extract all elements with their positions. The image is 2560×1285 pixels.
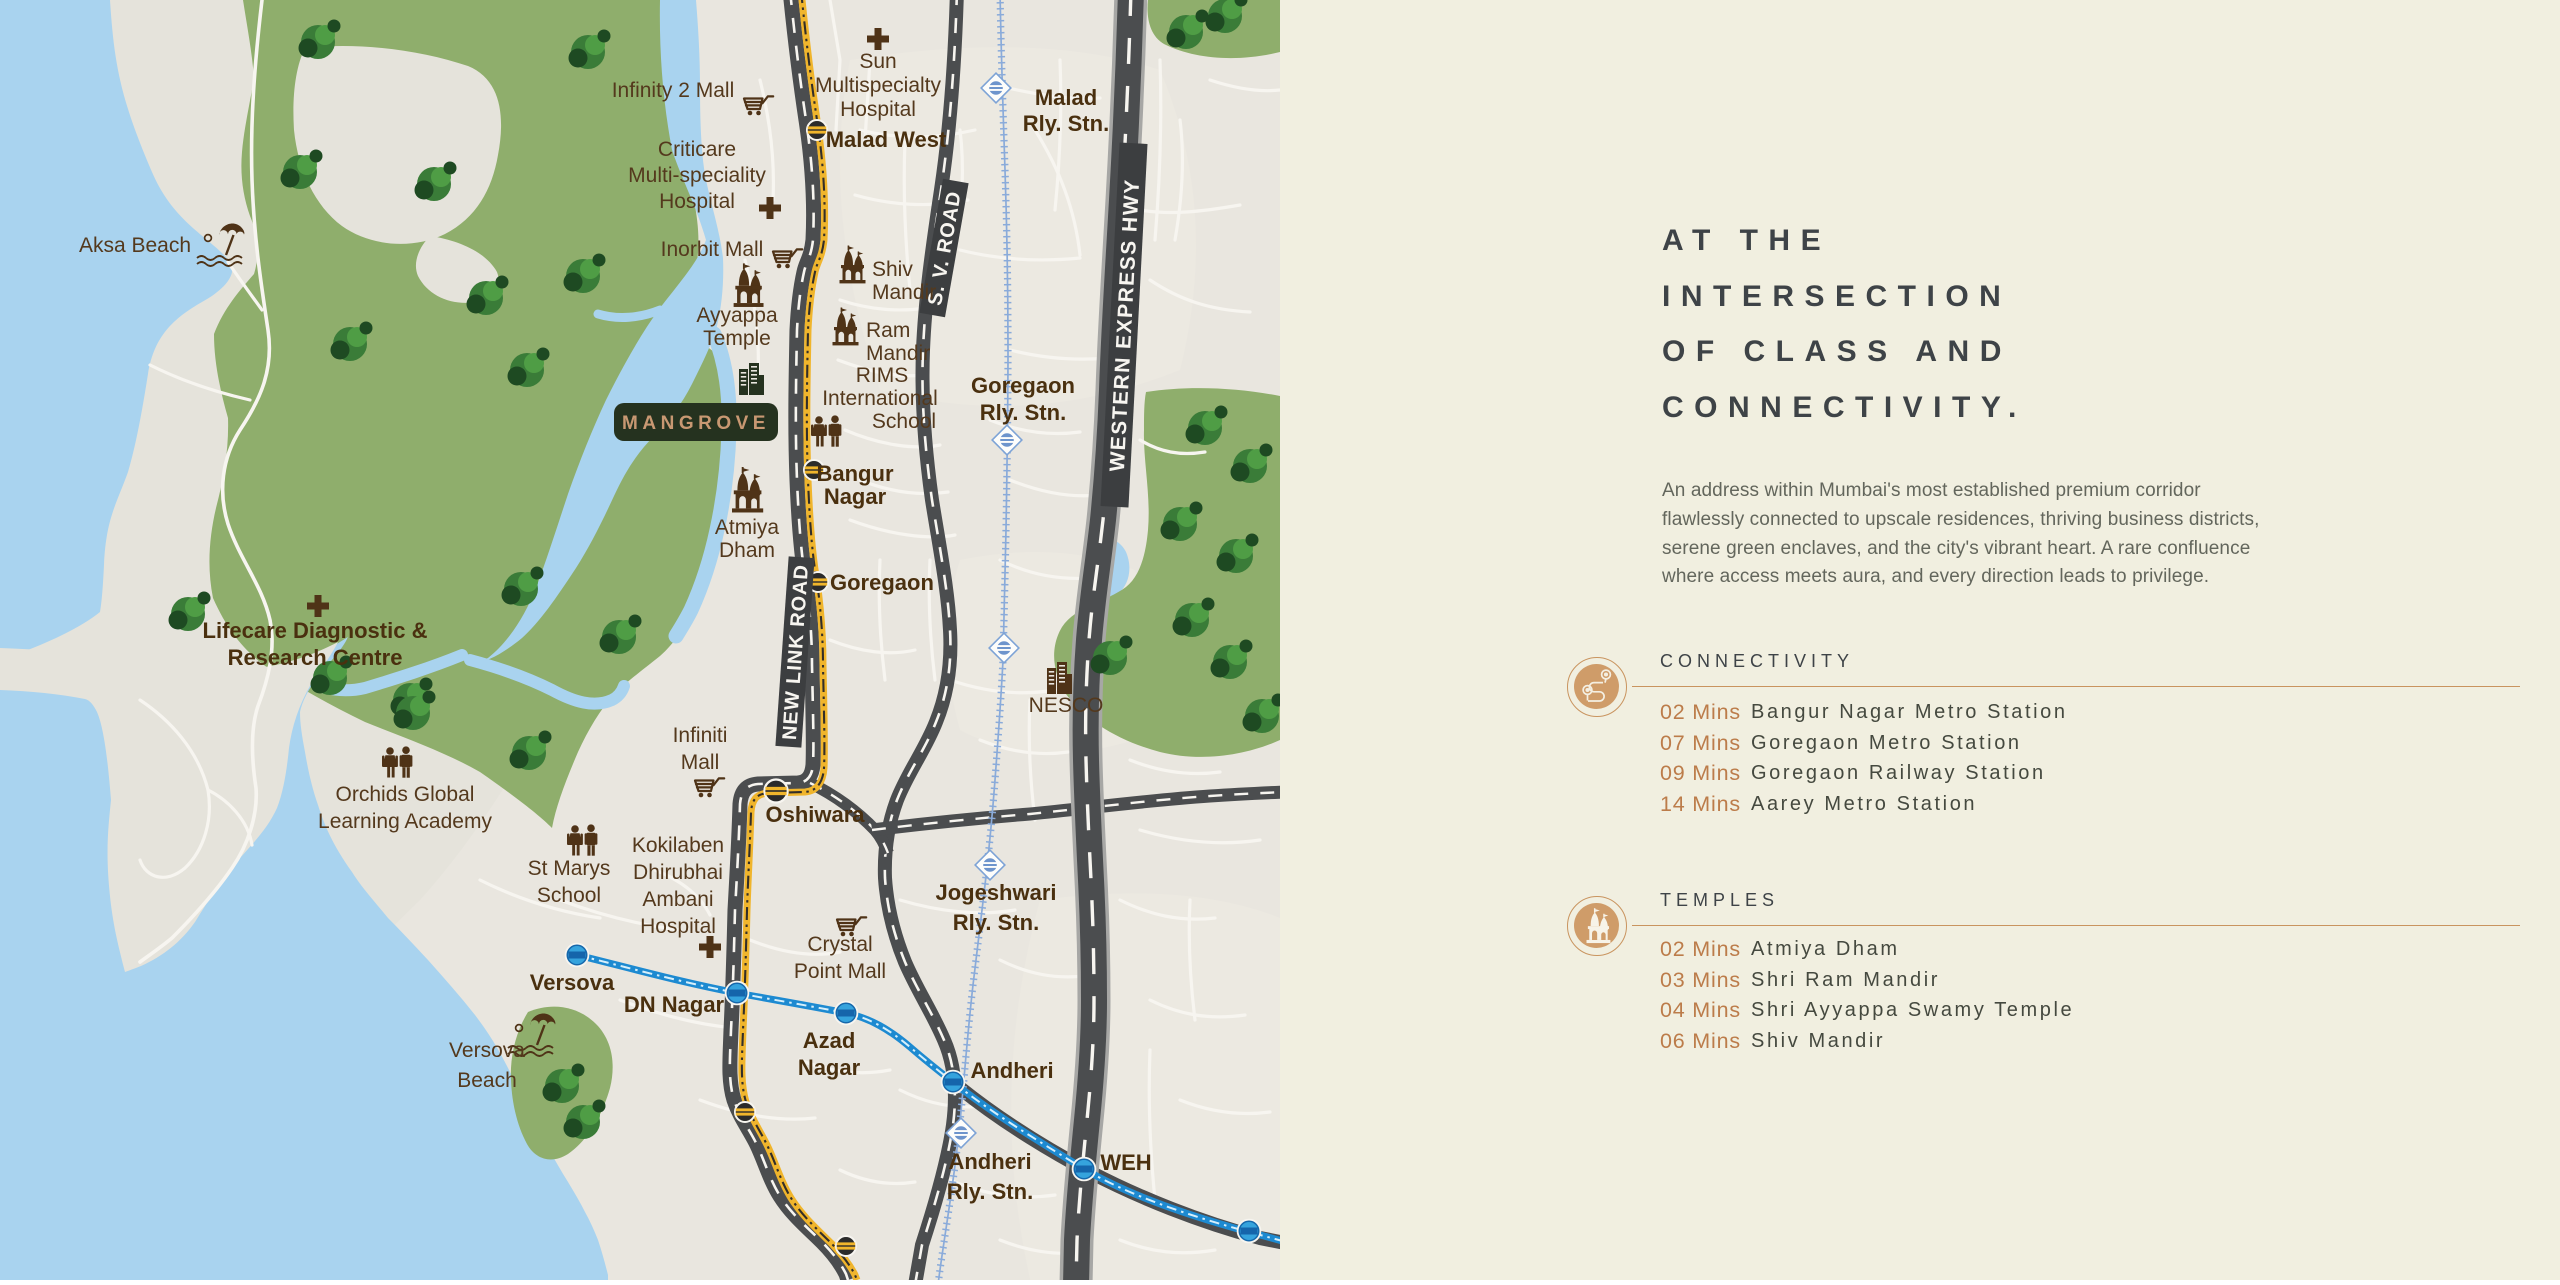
svg-text:Atmiya: Atmiya [715, 516, 780, 539]
svg-text:Learning Academy: Learning Academy [318, 810, 492, 833]
svg-text:Versova: Versova [530, 970, 615, 995]
svg-text:Infinity 2 Mall: Infinity 2 Mall [612, 79, 735, 102]
svg-text:Goregaon: Goregaon [830, 570, 934, 595]
svg-text:Hospital: Hospital [640, 915, 716, 938]
svg-text:Mall: Mall [681, 751, 720, 774]
svg-text:Dhirubhai: Dhirubhai [633, 861, 723, 884]
svg-text:St Marys: St Marys [528, 857, 611, 880]
svg-text:Rly. Stn.: Rly. Stn. [947, 1179, 1033, 1204]
svg-text:Hospital: Hospital [659, 190, 735, 213]
svg-text:Goregaon: Goregaon [971, 373, 1075, 398]
svg-text:International: International [822, 387, 938, 410]
svg-text:Dham: Dham [719, 539, 775, 562]
svg-text:Research Centre: Research Centre [228, 645, 403, 670]
svg-text:Oshiwara: Oshiwara [765, 802, 865, 827]
svg-text:Aksa Beach: Aksa Beach [79, 234, 191, 257]
svg-text:Crystal: Crystal [807, 933, 872, 956]
svg-text:Versova: Versova [449, 1039, 525, 1062]
svg-text:Rly. Stn.: Rly. Stn. [980, 400, 1066, 425]
svg-text:Jogeshwari: Jogeshwari [935, 880, 1056, 905]
svg-text:WEH: WEH [1100, 1150, 1151, 1175]
svg-text:Temple: Temple [703, 327, 771, 350]
svg-text:NESCO: NESCO [1029, 694, 1104, 717]
svg-text:Rly. Stn.: Rly. Stn. [1023, 111, 1109, 136]
svg-text:Beach: Beach [457, 1069, 517, 1092]
svg-text:Hospital: Hospital [840, 98, 916, 121]
svg-text:Point Mall: Point Mall [794, 960, 886, 983]
svg-text:Bangur: Bangur [817, 461, 894, 486]
svg-text:Inorbit Mall: Inorbit Mall [661, 238, 764, 261]
svg-text:Ayyappa: Ayyappa [696, 304, 778, 327]
svg-text:Shiv: Shiv [872, 258, 913, 281]
svg-text:Malad West: Malad West [826, 127, 947, 152]
svg-text:Ram: Ram [866, 319, 910, 342]
svg-text:MANGROVE: MANGROVE [622, 413, 770, 434]
svg-text:Kokilaben: Kokilaben [632, 834, 724, 857]
svg-text:School: School [872, 410, 936, 433]
svg-text:School: School [537, 884, 601, 907]
svg-text:Orchids Global: Orchids Global [336, 783, 475, 806]
svg-text:Multi-speciality: Multi-speciality [628, 164, 766, 187]
svg-text:Ambani: Ambani [642, 888, 713, 911]
svg-text:Multispecialty: Multispecialty [815, 74, 942, 97]
svg-text:Mandir: Mandir [872, 281, 936, 304]
svg-text:Andheri: Andheri [970, 1058, 1053, 1083]
svg-text:Infiniti: Infiniti [673, 724, 728, 747]
svg-text:DN Nagar: DN Nagar [624, 992, 725, 1017]
svg-text:RIMS: RIMS [856, 364, 909, 387]
svg-text:Azad: Azad [803, 1028, 856, 1053]
svg-text:Lifecare Diagnostic &: Lifecare Diagnostic & [203, 618, 428, 643]
svg-text:Malad: Malad [1035, 85, 1097, 110]
svg-text:Nagar: Nagar [798, 1055, 861, 1080]
svg-text:Criticare: Criticare [658, 138, 736, 161]
svg-text:Andheri: Andheri [948, 1149, 1031, 1174]
svg-text:Mandir: Mandir [866, 342, 930, 365]
svg-text:Sun: Sun [859, 50, 896, 73]
svg-text:Rly. Stn.: Rly. Stn. [953, 910, 1039, 935]
svg-text:Nagar: Nagar [824, 484, 887, 509]
